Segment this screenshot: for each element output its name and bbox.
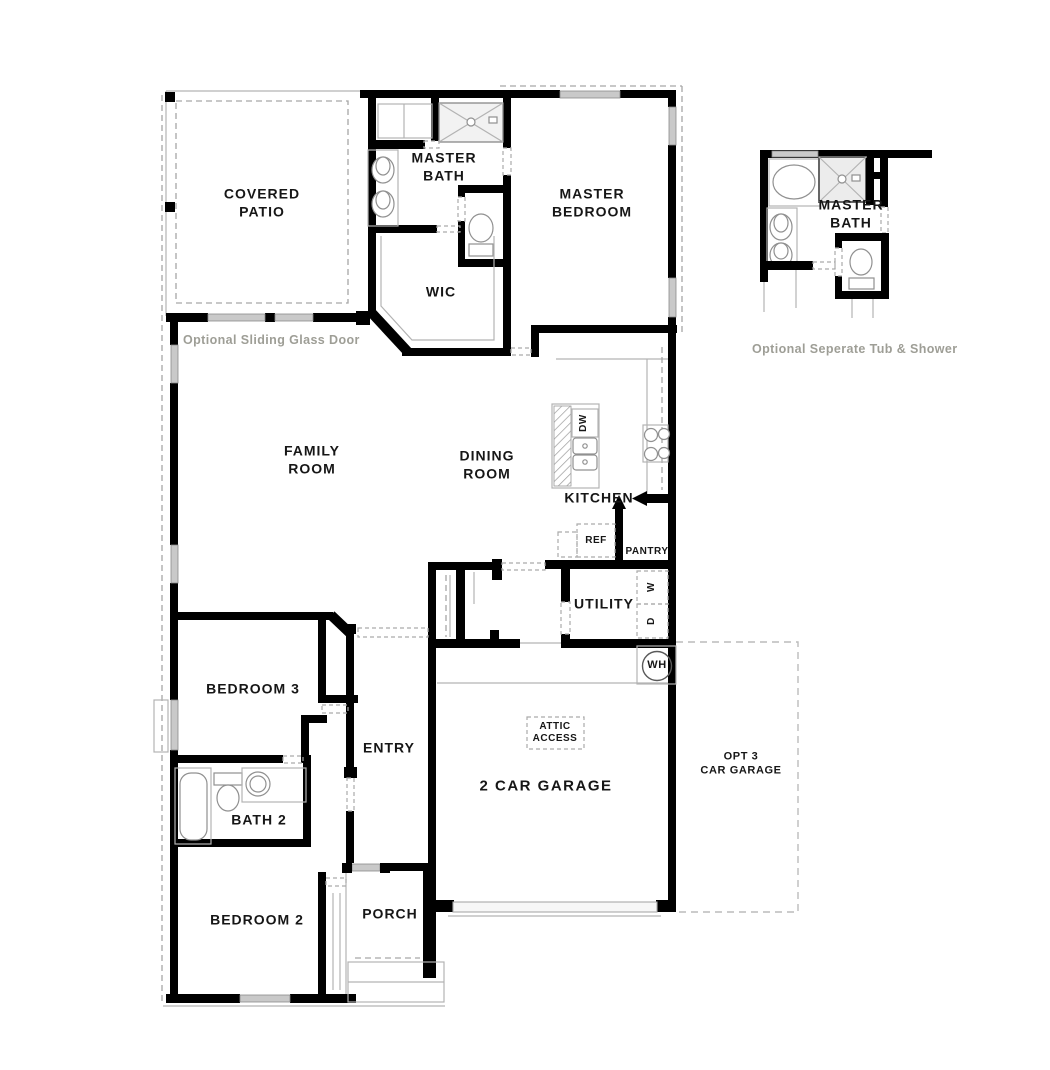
label-dishwasher: DW	[578, 414, 590, 432]
sliding-door-window	[275, 314, 313, 321]
label-washer: W	[646, 582, 658, 592]
toilet-tank	[214, 773, 242, 785]
toilet	[850, 249, 872, 275]
caption-sliding-door: Optional Sliding Glass Door	[183, 333, 360, 347]
window	[171, 700, 178, 750]
window-well	[154, 700, 168, 752]
label-kitchen: KITCHEN	[564, 489, 633, 507]
window	[560, 91, 620, 98]
cabinet	[378, 104, 432, 138]
label-porch: PORCH	[362, 905, 418, 923]
window	[171, 345, 178, 383]
label-pantry: PANTRY	[626, 546, 669, 558]
label-utility: UTILITY	[574, 595, 634, 613]
label-master-bedroom: MASTER BEDROOM	[552, 186, 632, 221]
label-dryer: D	[646, 617, 658, 625]
label-family-room: FAMILY ROOM	[284, 443, 340, 478]
porch-right-wall	[423, 863, 431, 978]
window	[669, 278, 676, 317]
sliding-door-window	[208, 314, 265, 321]
garage-door	[453, 902, 657, 912]
front-door-threshold	[352, 864, 380, 871]
master-bath-walls	[368, 90, 677, 357]
door-openings	[283, 141, 570, 886]
label-wic: WIC	[426, 283, 456, 301]
window	[669, 107, 676, 145]
optional-bath-detail	[760, 150, 932, 318]
floor-plan-page: COVERED PATIO MASTER BATH MASTER BEDROOM…	[0, 0, 1050, 1070]
label-dining-room: DINING ROOM	[460, 448, 515, 483]
kitchen-arrow	[632, 491, 647, 506]
kitchen	[552, 347, 676, 562]
floor-plan-drawing	[0, 0, 1050, 1070]
label-covered-patio: COVERED PATIO	[224, 186, 300, 221]
label-entry: ENTRY	[363, 739, 415, 757]
label-master-bath: MASTER BATH	[411, 150, 476, 185]
hall-closet-walls	[428, 559, 561, 648]
label-opt-garage: OPT 3 CAR GARAGE	[700, 750, 781, 778]
label-attic-access: ATTIC ACCESS	[533, 721, 578, 745]
bath2-fixtures	[175, 768, 306, 844]
window	[171, 545, 178, 583]
label-garage: 2 CAR GARAGE	[479, 778, 612, 797]
window	[240, 995, 290, 1002]
label-bath2: BATH 2	[231, 811, 287, 829]
label-detail-master-bath: MASTER BATH	[818, 197, 883, 232]
caption-tub-shower: Optional Seperate Tub & Shower	[752, 342, 958, 356]
patio-post	[165, 92, 175, 102]
label-water-heater: WH	[647, 659, 667, 673]
label-bedroom2: BEDROOM 2	[210, 911, 304, 929]
label-refrigerator: REF	[585, 535, 607, 547]
toilet	[469, 214, 493, 242]
toilet	[217, 785, 239, 811]
patio-post	[165, 202, 175, 212]
garage-walls	[428, 563, 676, 978]
label-bedroom3: BEDROOM 3	[206, 680, 300, 698]
